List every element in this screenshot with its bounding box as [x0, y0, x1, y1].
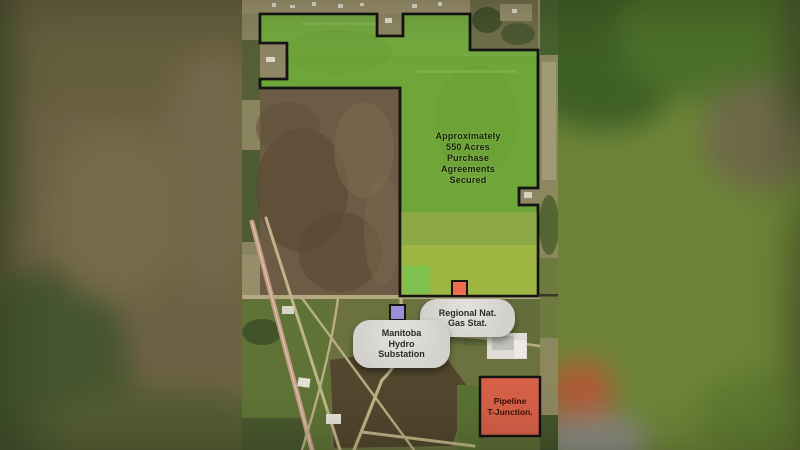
purchase-annotation: Approximately 550 Acres Purchase Agreeme…: [402, 131, 534, 186]
news-map-graphic: Approximately 550 Acres Purchase Agreeme…: [0, 0, 800, 450]
gas-station-marker: [452, 281, 467, 296]
blurred-background-left: [0, 0, 242, 450]
satellite-map: Approximately 550 Acres Purchase Agreeme…: [242, 0, 558, 450]
pipeline-junction-label: Pipeline T-Junction.: [480, 377, 540, 436]
hydro-substation-label: Manitoba Hydro Substation: [353, 320, 450, 368]
blurred-background-right: [558, 0, 800, 450]
substation-marker: [390, 305, 405, 320]
